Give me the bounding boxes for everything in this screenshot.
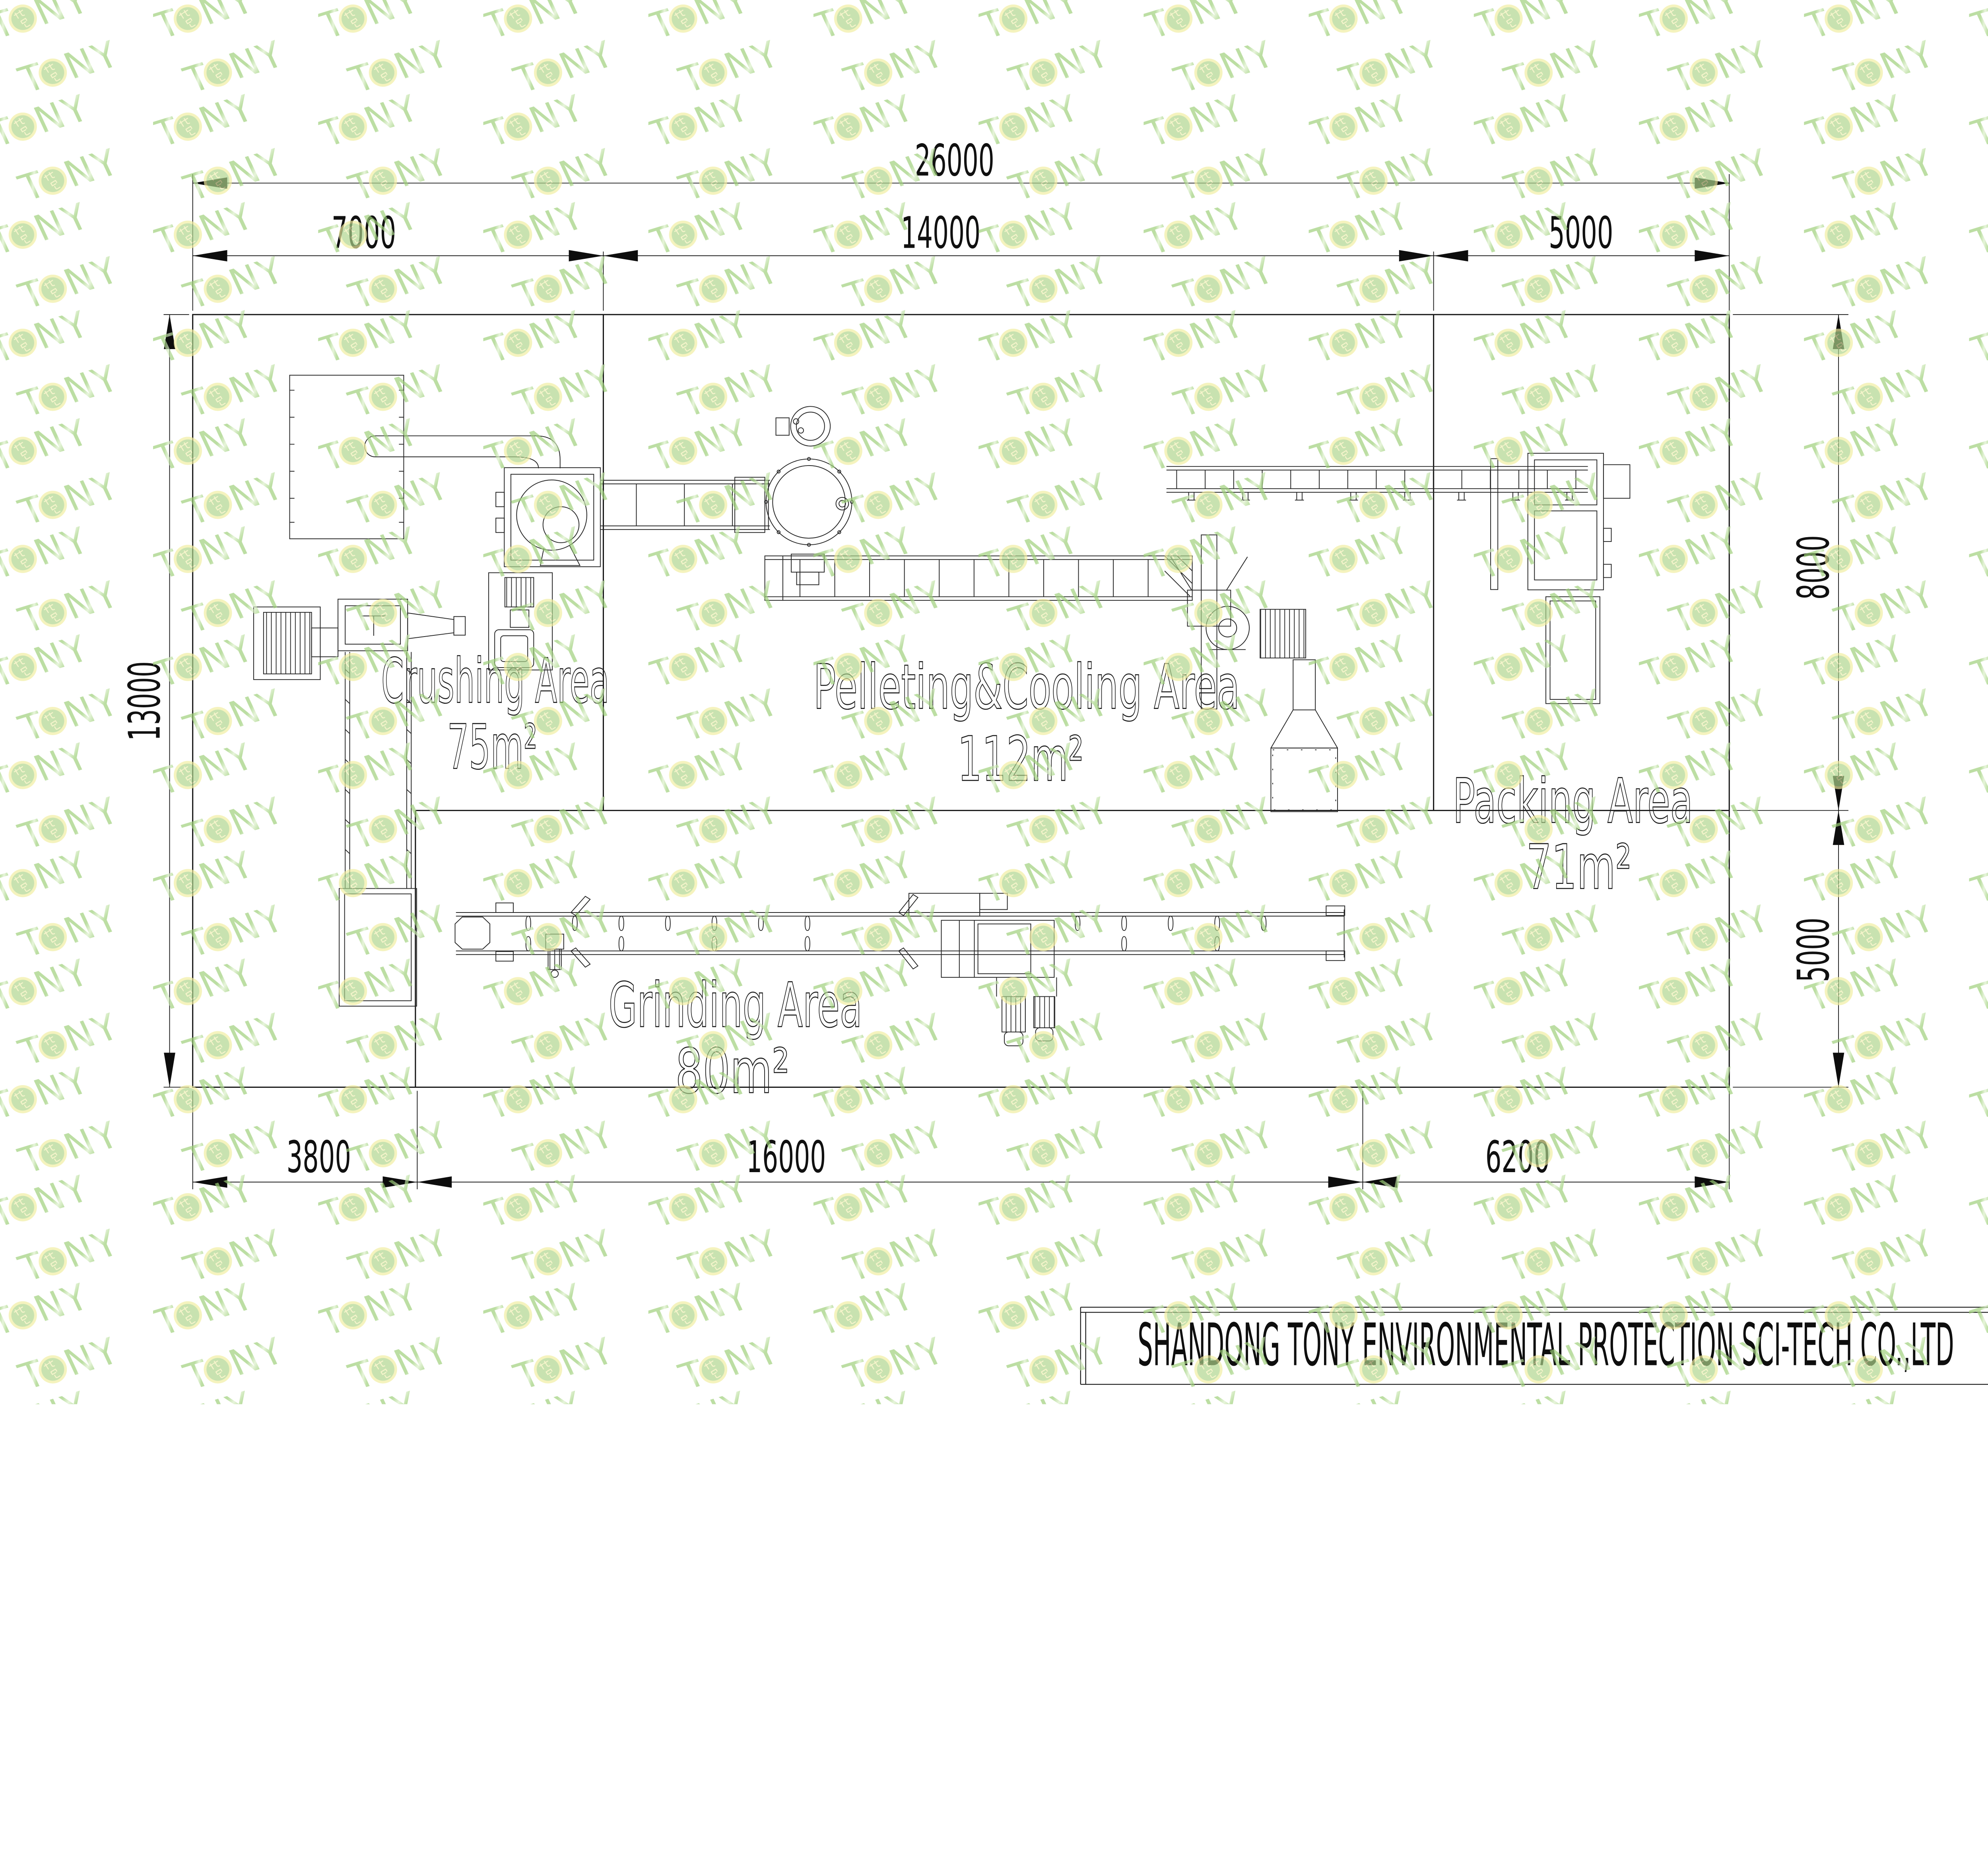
tony-watermark-pattern <box>0 0 1988 1404</box>
factory-layout-drawing: T NY <box>0 0 1988 1404</box>
